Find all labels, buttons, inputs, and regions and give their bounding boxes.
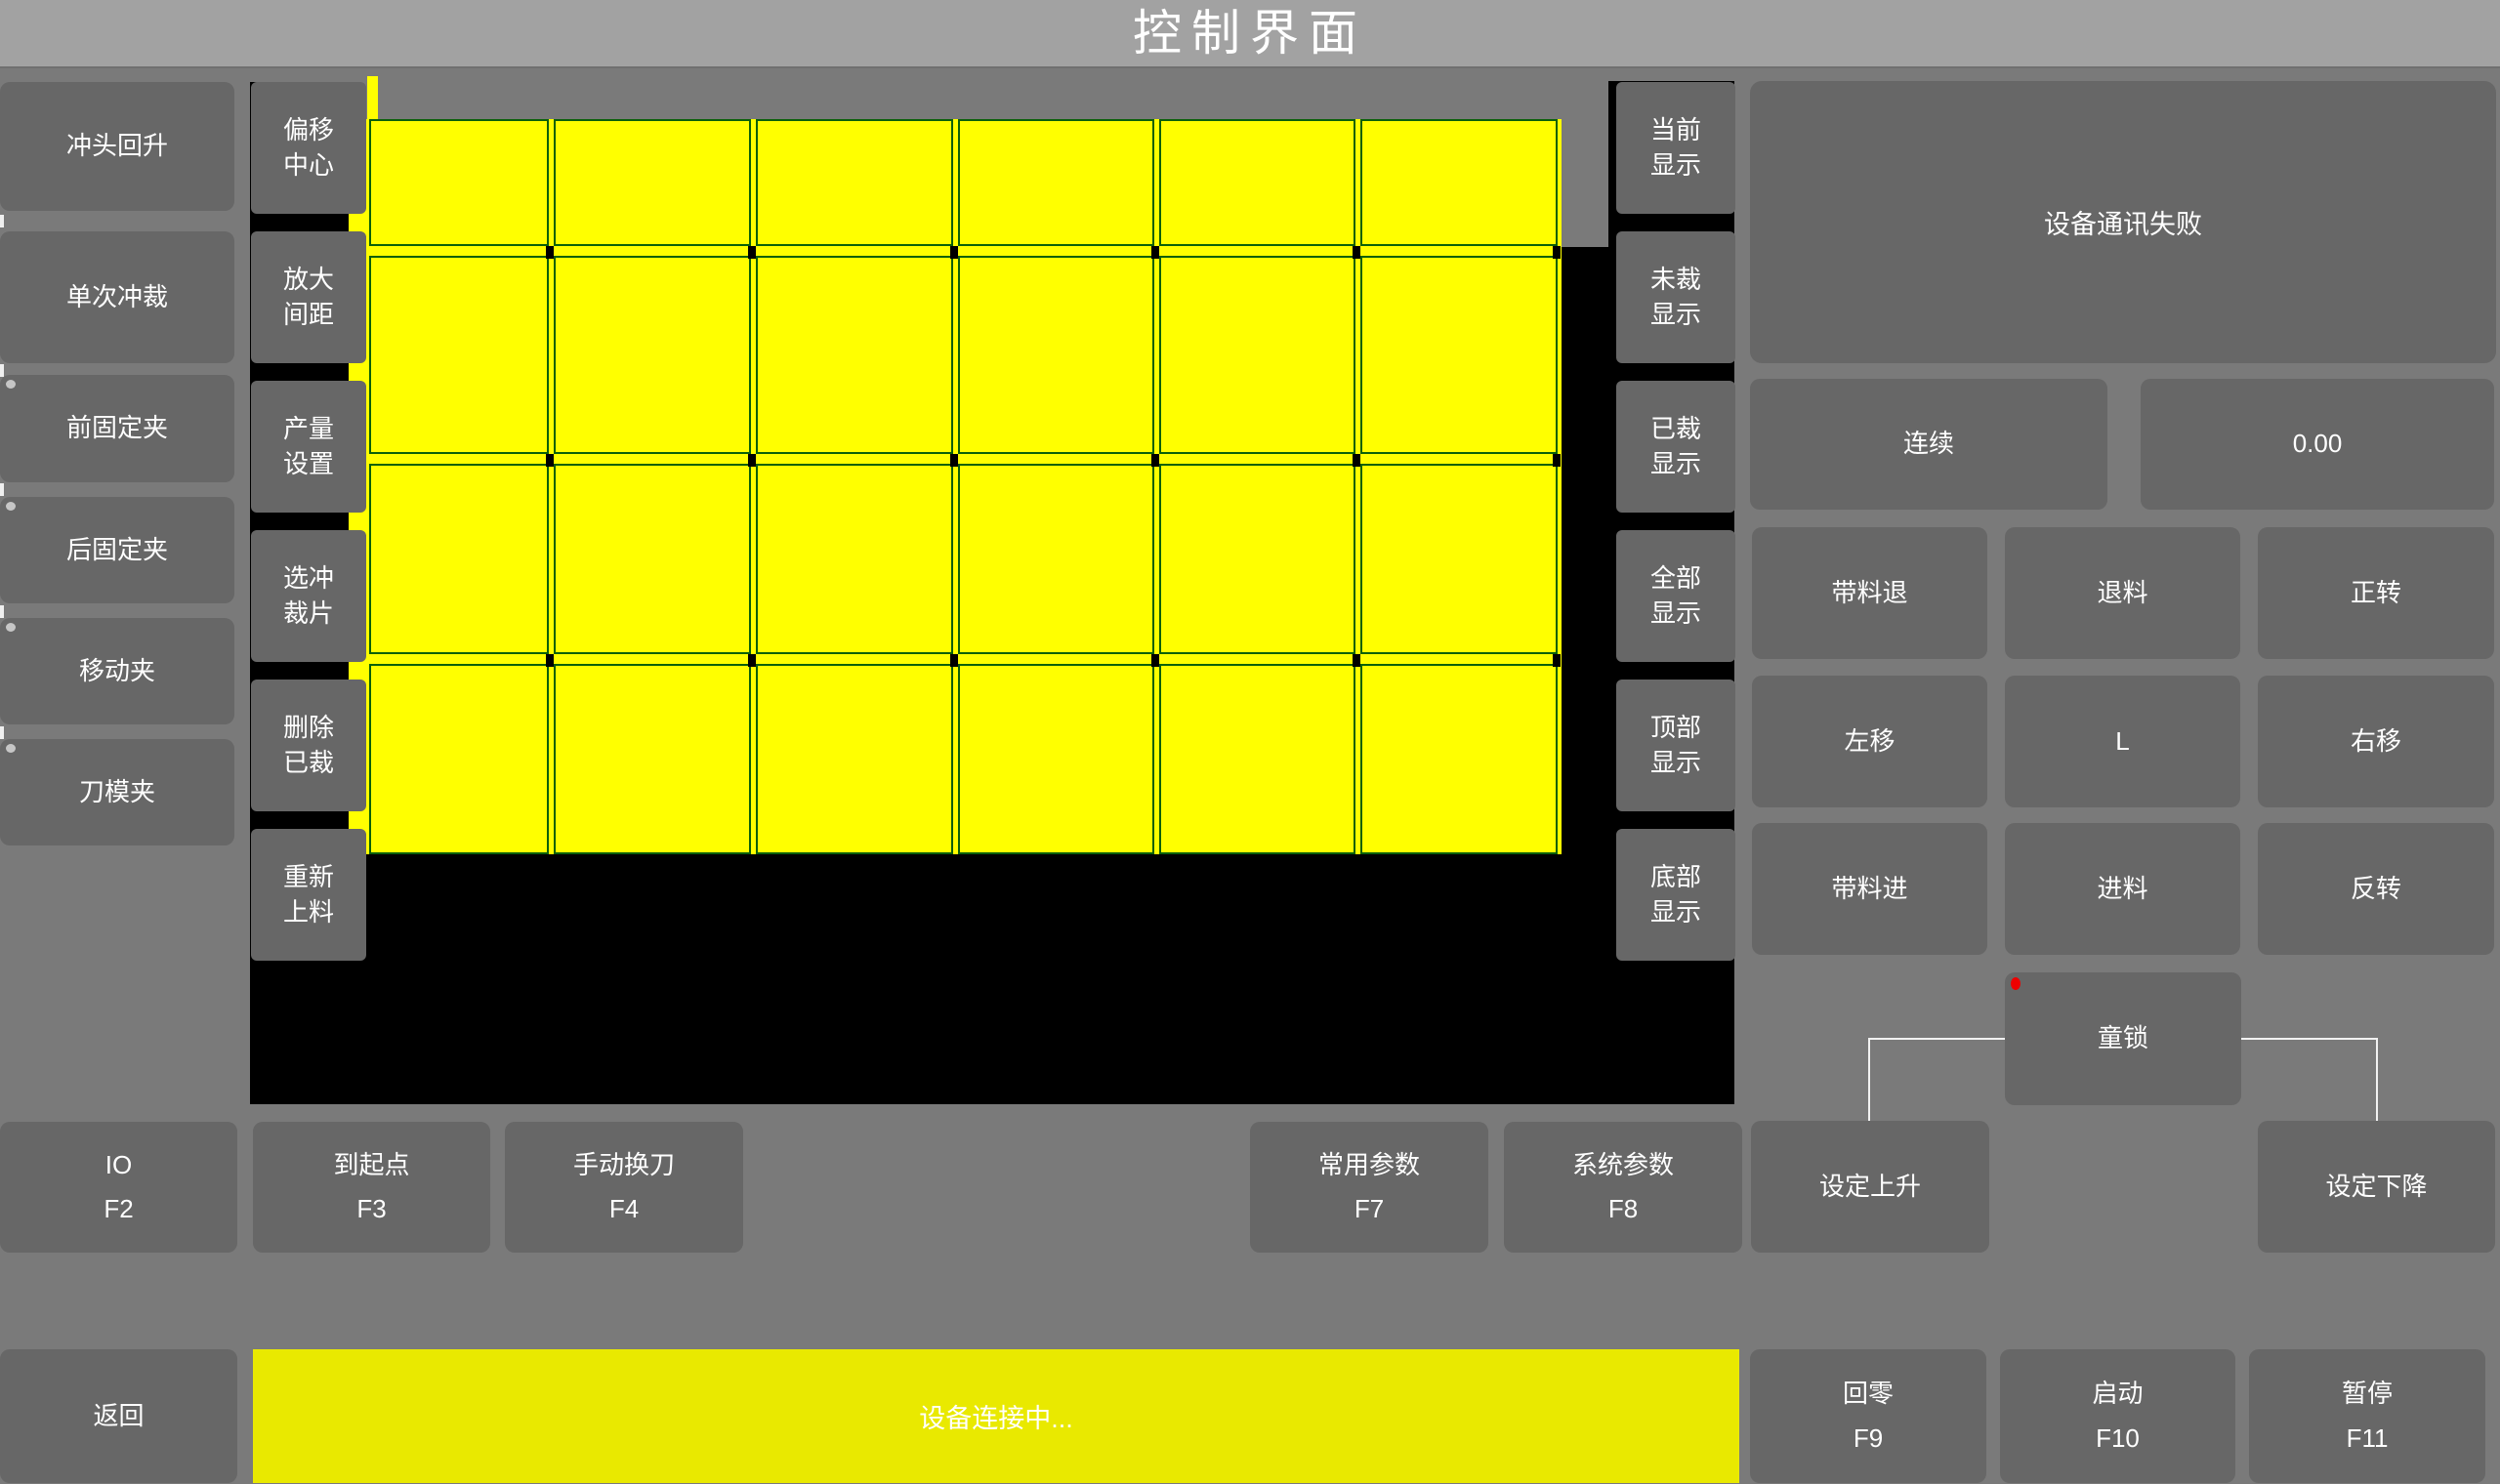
cut-mark-tick xyxy=(748,654,756,667)
fkey-code: F2 xyxy=(104,1192,133,1226)
child-lock-connector-right-h xyxy=(2241,1038,2378,1040)
button-home-f9[interactable]: 回零 F9 xyxy=(1750,1349,1986,1483)
button-label: 连续 xyxy=(1903,427,1954,461)
button-label: 后固定夹 xyxy=(66,533,168,567)
child-lock-connector-right-v xyxy=(2376,1038,2378,1121)
cut-piece[interactable] xyxy=(554,664,751,854)
button-label: 放大 间距 xyxy=(283,263,334,331)
clamp-indicator-dot xyxy=(6,744,16,753)
cut-piece[interactable] xyxy=(1360,119,1558,246)
button-label: 顶部 显示 xyxy=(1650,711,1701,779)
cut-piece[interactable] xyxy=(958,119,1154,246)
cut-piece[interactable] xyxy=(369,119,549,246)
canvas-right-mid xyxy=(1562,247,1608,1104)
cut-mark-tick xyxy=(748,246,756,259)
button-common-params-f7[interactable]: 常用参数 F7 xyxy=(1250,1122,1488,1253)
cut-mark-tick xyxy=(1553,246,1561,259)
button-label: 带料进 xyxy=(1831,872,1907,906)
cut-mark-tick xyxy=(950,654,958,667)
button-show-bottom[interactable]: 底部 显示 xyxy=(1616,829,1735,961)
cut-piece[interactable] xyxy=(756,664,953,854)
fkey-code: F7 xyxy=(1354,1192,1384,1226)
button-set-rise[interactable]: 设定上升 xyxy=(1751,1121,1989,1253)
button-reload-material[interactable]: 重新 上料 xyxy=(251,829,366,961)
button-forward-rotate[interactable]: 正转 xyxy=(2258,527,2494,659)
cut-mark-tick xyxy=(1151,454,1159,467)
cut-piece[interactable] xyxy=(1159,664,1355,854)
button-label: 刀模夹 xyxy=(79,775,155,809)
child-lock-indicator-dot xyxy=(2011,977,2021,990)
button-pause-f11[interactable]: 暂停 F11 xyxy=(2249,1349,2485,1483)
button-label: L xyxy=(2115,724,2129,759)
button-start-f10[interactable]: 启动 F10 xyxy=(2000,1349,2235,1483)
button-select-piece[interactable]: 选冲 裁片 xyxy=(251,530,366,662)
fkey-code: F10 xyxy=(2096,1422,2140,1456)
button-label: 未裁 显示 xyxy=(1650,263,1701,331)
cut-mark-tick xyxy=(748,454,756,467)
button-label: 返回 xyxy=(93,1399,144,1433)
button-show-top[interactable]: 顶部 显示 xyxy=(1616,680,1735,811)
fkey-code: F4 xyxy=(609,1192,639,1226)
button-label: 移动夹 xyxy=(79,654,155,688)
cut-mark-tick xyxy=(1353,454,1360,467)
button-show-all[interactable]: 全部 显示 xyxy=(1616,530,1735,662)
button-to-origin-f3[interactable]: 到起点 F3 xyxy=(253,1122,490,1253)
cut-piece[interactable] xyxy=(1360,664,1558,854)
fkey-code: F9 xyxy=(1854,1422,1883,1456)
control-screen: 控制界面 冲头回升 单次冲裁 前固定夹 后固定夹 移动夹 刀模夹 偏移 中心 放… xyxy=(0,0,2500,1484)
fkey-code: F8 xyxy=(1608,1192,1638,1226)
fkey-label: IO xyxy=(105,1148,132,1182)
edge-mark xyxy=(0,364,4,377)
button-punch-return[interactable]: 冲头回升 xyxy=(0,82,234,211)
cut-piece[interactable] xyxy=(958,256,1154,454)
fkey-label: 系统参数 xyxy=(1572,1148,1674,1182)
edge-mark xyxy=(0,726,4,739)
cut-mark-tick xyxy=(546,654,554,667)
device-status-message: 设备通讯失败 xyxy=(2044,203,2202,241)
button-move-left[interactable]: 左移 xyxy=(1752,676,1987,807)
counter-value-display: 0.00 xyxy=(2141,379,2494,510)
button-label: 单次冲裁 xyxy=(66,280,168,314)
cut-piece[interactable] xyxy=(958,464,1154,654)
cut-piece[interactable] xyxy=(554,256,751,454)
button-label: 全部 显示 xyxy=(1650,561,1701,630)
button-front-clamp[interactable]: 前固定夹 xyxy=(0,375,234,482)
button-label: 产量 设置 xyxy=(283,412,334,480)
fkey-label: 到起点 xyxy=(333,1148,409,1182)
button-system-params-f8[interactable]: 系统参数 F8 xyxy=(1504,1122,1742,1253)
button-label: 正转 xyxy=(2351,576,2401,610)
button-label: 删除 已裁 xyxy=(283,711,334,779)
cut-piece[interactable] xyxy=(958,664,1154,854)
button-label: 设定上升 xyxy=(1819,1170,1921,1204)
cut-mark-tick xyxy=(950,246,958,259)
cut-mark-tick xyxy=(950,454,958,467)
cut-piece[interactable] xyxy=(756,119,953,246)
button-label: 进料 xyxy=(2097,872,2147,906)
button-move-right[interactable]: 右移 xyxy=(2258,676,2494,807)
button-offset-center[interactable]: 偏移 中心 xyxy=(251,82,366,214)
button-set-fall[interactable]: 设定下降 xyxy=(2258,1121,2495,1253)
button-label: 童锁 xyxy=(2098,1021,2148,1055)
cut-piece[interactable] xyxy=(1360,256,1558,454)
button-continuous-mode[interactable]: 连续 xyxy=(1750,379,2107,510)
button-show-cut[interactable]: 已裁 显示 xyxy=(1616,381,1735,513)
cut-mark-tick xyxy=(1353,654,1360,667)
button-reverse-rotate[interactable]: 反转 xyxy=(2258,823,2494,955)
button-yield-setting[interactable]: 产量 设置 xyxy=(251,381,366,513)
cut-piece[interactable] xyxy=(1159,119,1355,246)
button-label: 已裁 显示 xyxy=(1650,412,1701,480)
fkey-code: F3 xyxy=(356,1192,386,1226)
button-show-uncut[interactable]: 未裁 显示 xyxy=(1616,231,1735,363)
cut-mark-tick xyxy=(1553,654,1561,667)
button-label: 底部 显示 xyxy=(1650,860,1701,928)
cut-piece[interactable] xyxy=(369,464,549,654)
button-single-punch[interactable]: 单次冲裁 xyxy=(0,231,234,363)
canvas-bottom-strip xyxy=(349,854,1562,1104)
button-io-f2[interactable]: IO F2 xyxy=(0,1122,237,1253)
material-edge-sliver xyxy=(367,76,378,123)
button-label: 退料 xyxy=(2097,576,2147,610)
clamp-indicator-dot xyxy=(6,502,16,511)
cut-mark-tick xyxy=(546,454,554,467)
button-manual-tool-change-f4[interactable]: 手动换刀 F4 xyxy=(505,1122,743,1253)
fkey-label: 暂停 xyxy=(2342,1377,2393,1411)
button-label: 偏移 中心 xyxy=(283,113,334,182)
cut-piece[interactable] xyxy=(756,256,953,454)
connection-status-bar: 设备连接中... xyxy=(253,1349,1739,1483)
button-delete-cut[interactable]: 删除 已裁 xyxy=(251,680,366,811)
edge-mark xyxy=(0,215,4,227)
button-label: 设定下降 xyxy=(2325,1170,2427,1204)
child-lock-connector-left-h xyxy=(1868,1038,2005,1040)
page-title: 控制界面 xyxy=(1133,9,1367,58)
button-label: 反转 xyxy=(2351,872,2401,906)
button-zoom-spacing[interactable]: 放大 间距 xyxy=(251,231,366,363)
button-label: 当前 显示 xyxy=(1650,113,1701,182)
edge-mark xyxy=(0,483,4,496)
cut-piece[interactable] xyxy=(1360,464,1558,654)
title-bar: 控制界面 xyxy=(0,0,2500,68)
cut-mark-tick xyxy=(1553,454,1561,467)
cut-piece[interactable] xyxy=(1159,464,1355,654)
cut-piece[interactable] xyxy=(369,664,549,854)
button-label: 右移 xyxy=(2351,724,2401,759)
cut-mark-tick xyxy=(546,246,554,259)
button-label: 冲头回升 xyxy=(66,129,168,163)
fkey-code: F11 xyxy=(2347,1422,2389,1456)
button-feed[interactable]: 进料 xyxy=(2005,823,2240,955)
clamp-indicator-dot xyxy=(6,623,16,632)
clamp-indicator-dot xyxy=(6,380,16,389)
counter-value: 0.00 xyxy=(2293,427,2343,461)
cut-piece[interactable] xyxy=(369,256,549,454)
cut-piece[interactable] xyxy=(554,119,751,246)
button-strip-forward[interactable]: 带料进 xyxy=(1752,823,1987,955)
button-moving-clamp[interactable]: 移动夹 xyxy=(0,618,234,724)
child-lock-connector-left-v xyxy=(1868,1038,1870,1121)
button-label: 带料退 xyxy=(1831,576,1907,610)
cut-mark-tick xyxy=(1353,246,1360,259)
button-label: 左移 xyxy=(1844,724,1895,759)
button-label: 选冲 裁片 xyxy=(283,561,334,630)
button-rear-clamp[interactable]: 后固定夹 xyxy=(0,497,234,603)
button-label: 前固定夹 xyxy=(66,411,168,445)
button-eject[interactable]: 退料 xyxy=(2005,527,2240,659)
fkey-label: 启动 xyxy=(2092,1377,2143,1411)
button-die-clamp[interactable]: 刀模夹 xyxy=(0,739,234,845)
fkey-label: 常用参数 xyxy=(1318,1148,1420,1182)
connection-status-text: 设备连接中... xyxy=(919,1397,1073,1435)
button-child-lock[interactable]: 童锁 xyxy=(2005,972,2241,1105)
cut-mark-tick xyxy=(1151,246,1159,259)
button-label: 重新 上料 xyxy=(283,860,334,928)
device-status-panel: 设备通讯失败 xyxy=(1750,81,2496,363)
cut-mark-tick xyxy=(1151,654,1159,667)
edge-mark xyxy=(0,605,4,618)
fkey-label: 手动换刀 xyxy=(573,1148,675,1182)
cut-piece[interactable] xyxy=(554,464,751,654)
button-show-current[interactable]: 当前 显示 xyxy=(1616,82,1735,214)
fkey-label: 回零 xyxy=(1843,1377,1894,1411)
button-strip-back[interactable]: 带料退 xyxy=(1752,527,1987,659)
button-back[interactable]: 返回 xyxy=(0,1349,237,1483)
cut-piece[interactable] xyxy=(1159,256,1355,454)
button-l-center[interactable]: L xyxy=(2005,676,2240,807)
cut-piece[interactable] xyxy=(756,464,953,654)
